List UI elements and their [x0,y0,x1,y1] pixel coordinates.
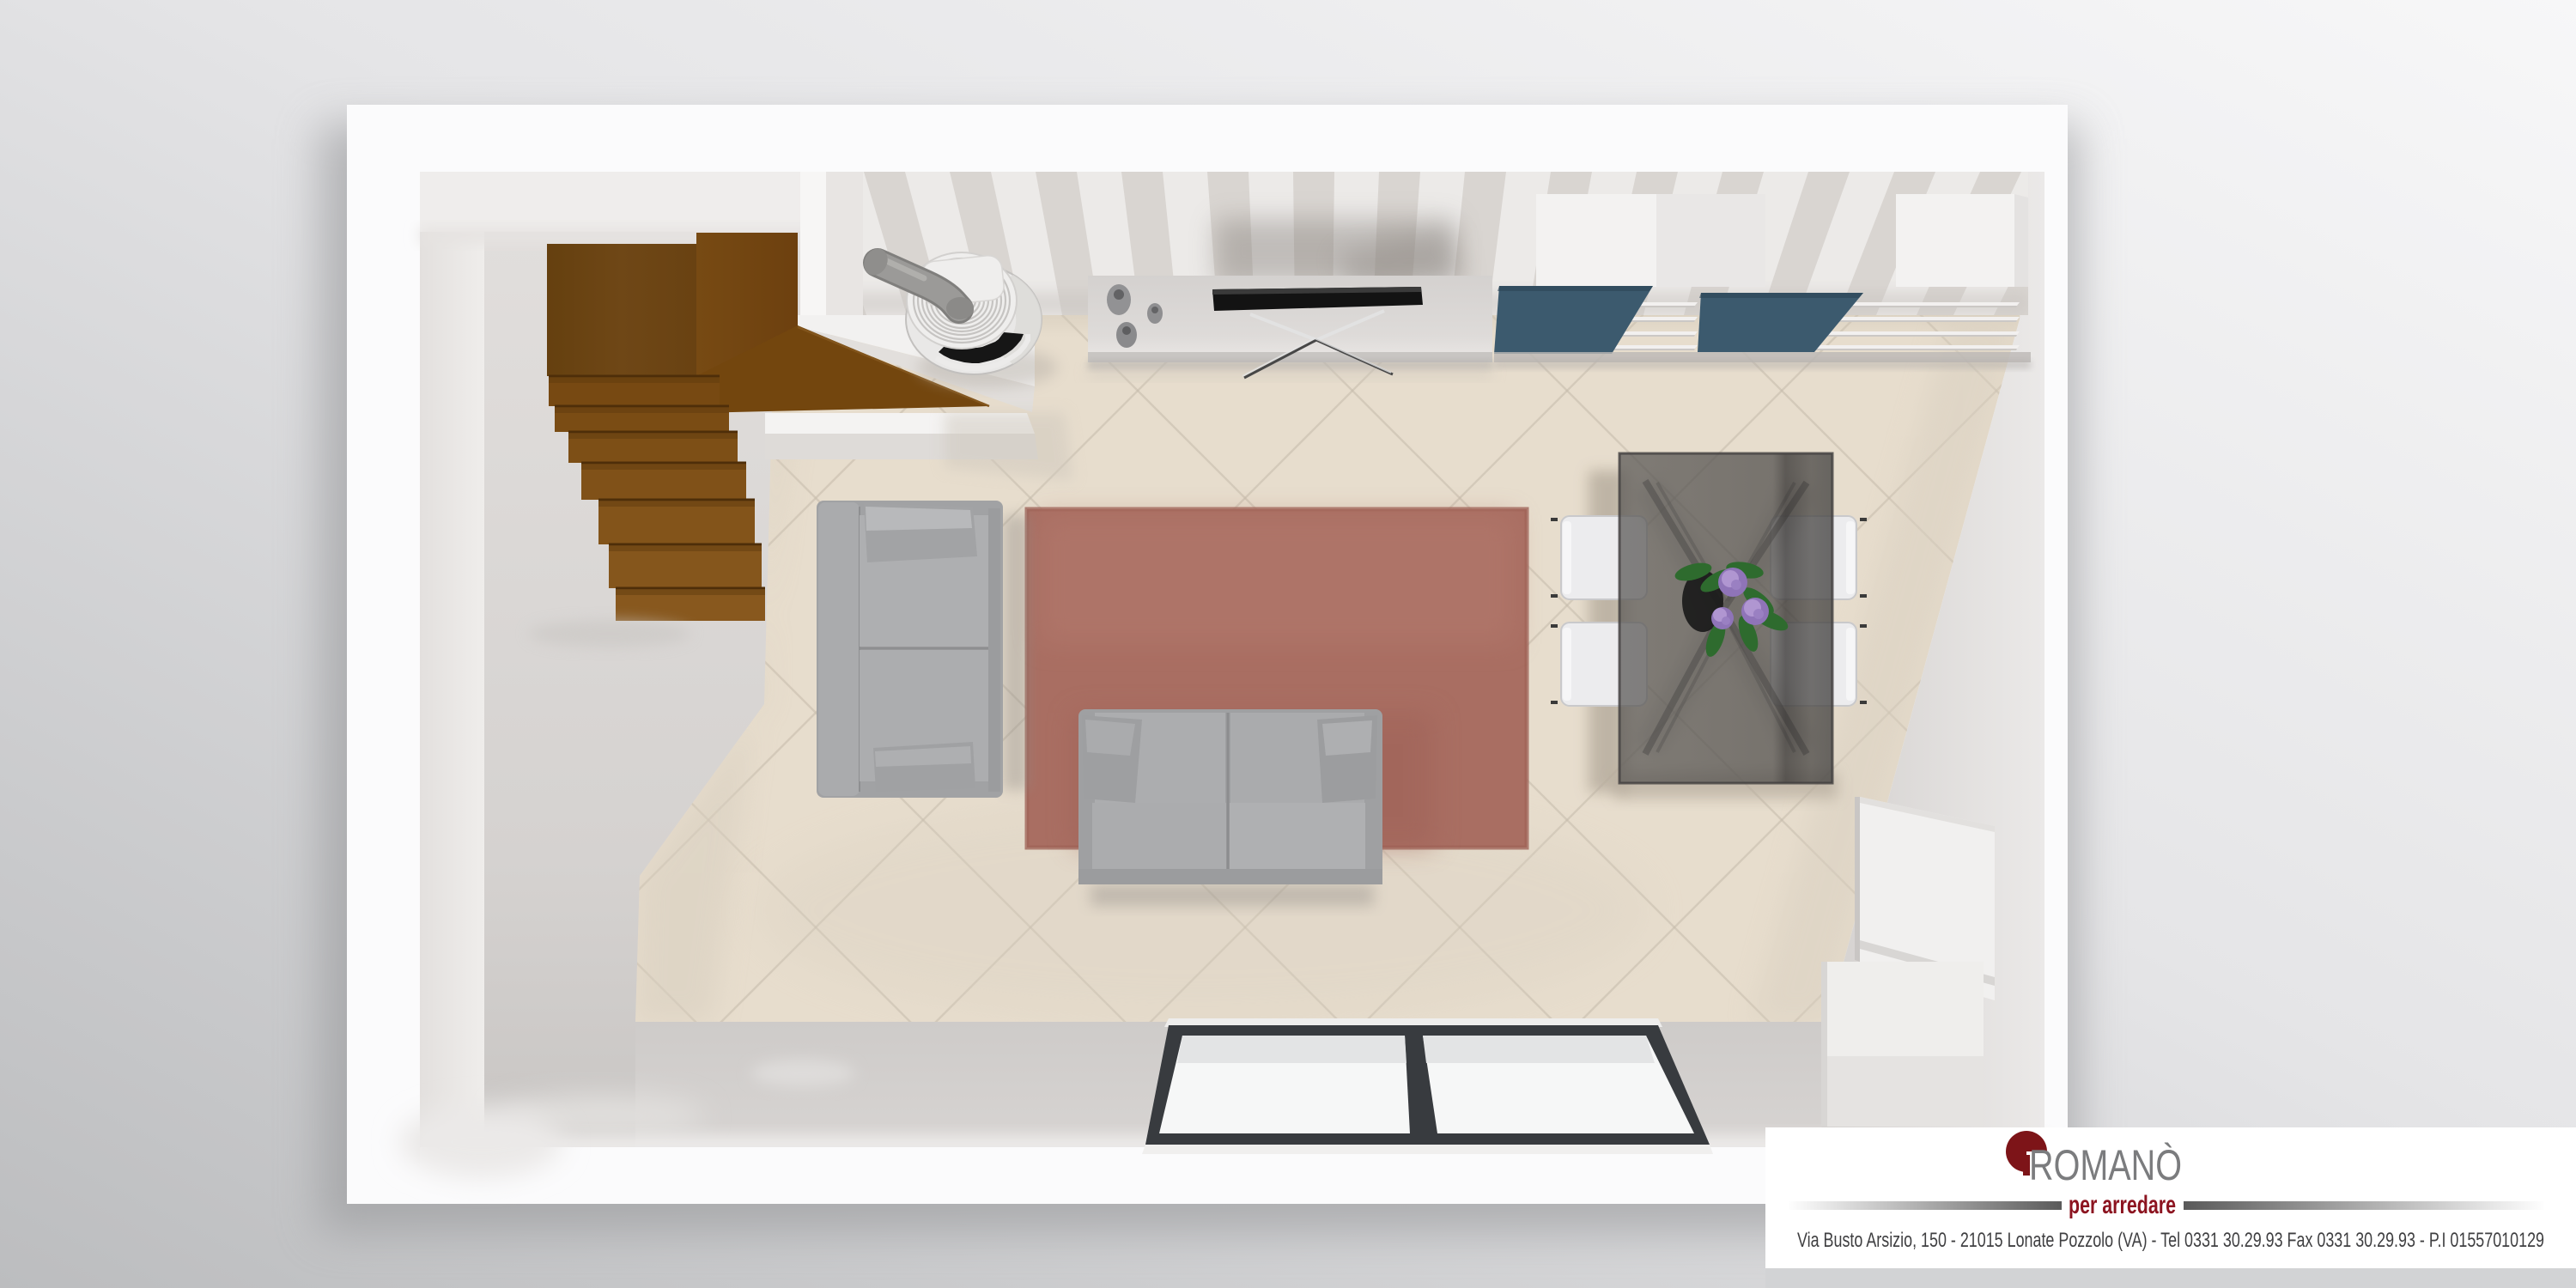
svg-text:per arredare: per arredare [2069,1191,2176,1219]
svg-text:ROMANÒ: ROMANÒ [2029,1141,2182,1189]
svg-text:Via Busto Arsizio, 150 - 21015: Via Busto Arsizio, 150 - 21015 Lonate Po… [1797,1229,2544,1252]
